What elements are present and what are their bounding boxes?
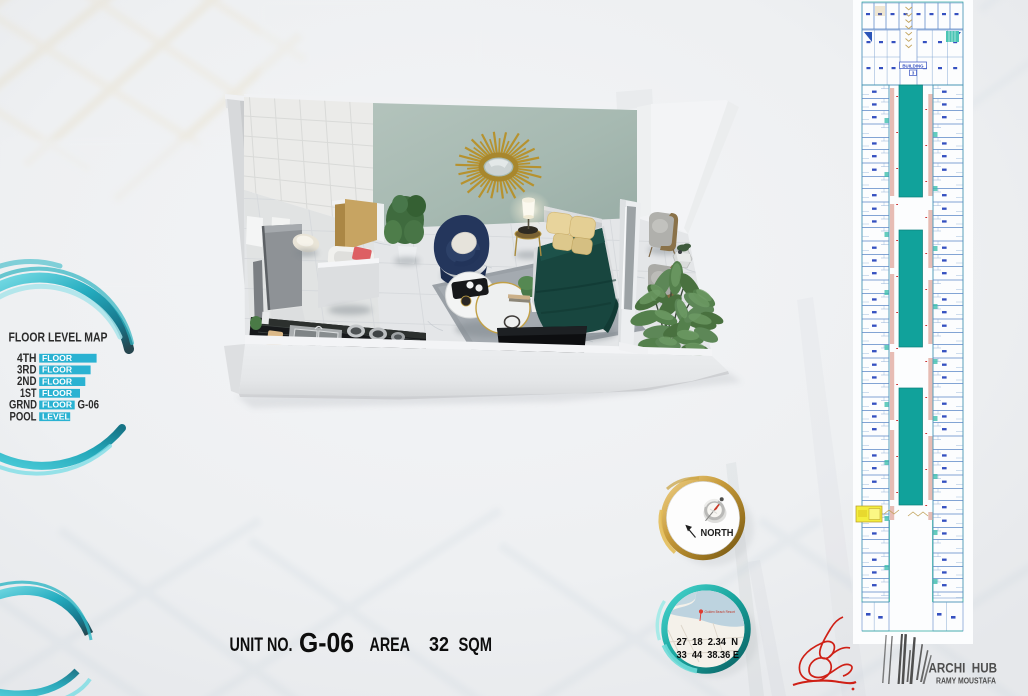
svg-text:LEVEL: LEVEL	[42, 411, 70, 421]
svg-text:2ND: 2ND	[17, 376, 37, 388]
svg-text:G-06: G-06	[78, 400, 100, 412]
svg-text:4TH: 4TH	[17, 353, 37, 365]
svg-text:3: 3	[912, 71, 915, 76]
svg-text:G-06: G-06	[299, 627, 354, 658]
svg-text:32: 32	[429, 633, 449, 656]
svg-text:BUILDING: BUILDING	[902, 63, 924, 68]
svg-text:SQM: SQM	[459, 635, 493, 656]
svg-text:AREA: AREA	[370, 635, 411, 656]
svg-text:UNIT NO.: UNIT NO.	[230, 635, 293, 656]
svg-text:POOL: POOL	[10, 411, 37, 423]
svg-text:1ST: 1ST	[20, 388, 37, 400]
svg-text:FLOOR: FLOOR	[42, 365, 73, 375]
svg-text:FLOOR: FLOOR	[42, 388, 73, 398]
svg-text:FLOOR: FLOOR	[42, 400, 73, 410]
svg-text:FLOOR: FLOOR	[42, 376, 73, 386]
svg-text:3RD: 3RD	[17, 365, 37, 377]
svg-text:ARCHI HUB: ARCHI HUB	[929, 661, 998, 676]
svg-text:33 44 38.36 E: 33 44 38.36 E	[677, 649, 740, 661]
svg-text:Golden Beach Resort: Golden Beach Resort	[705, 610, 736, 614]
svg-text:27 18 2.34 N: 27 18 2.34 N	[677, 636, 739, 648]
svg-text:FLOOR LEVEL MAP: FLOOR LEVEL MAP	[9, 330, 108, 345]
svg-text:FLOOR: FLOOR	[42, 353, 73, 363]
svg-text:NORTH: NORTH	[701, 528, 734, 539]
svg-text:RAMY MOUSTAFA: RAMY MOUSTAFA	[936, 677, 996, 686]
svg-text:GRND: GRND	[9, 400, 37, 412]
